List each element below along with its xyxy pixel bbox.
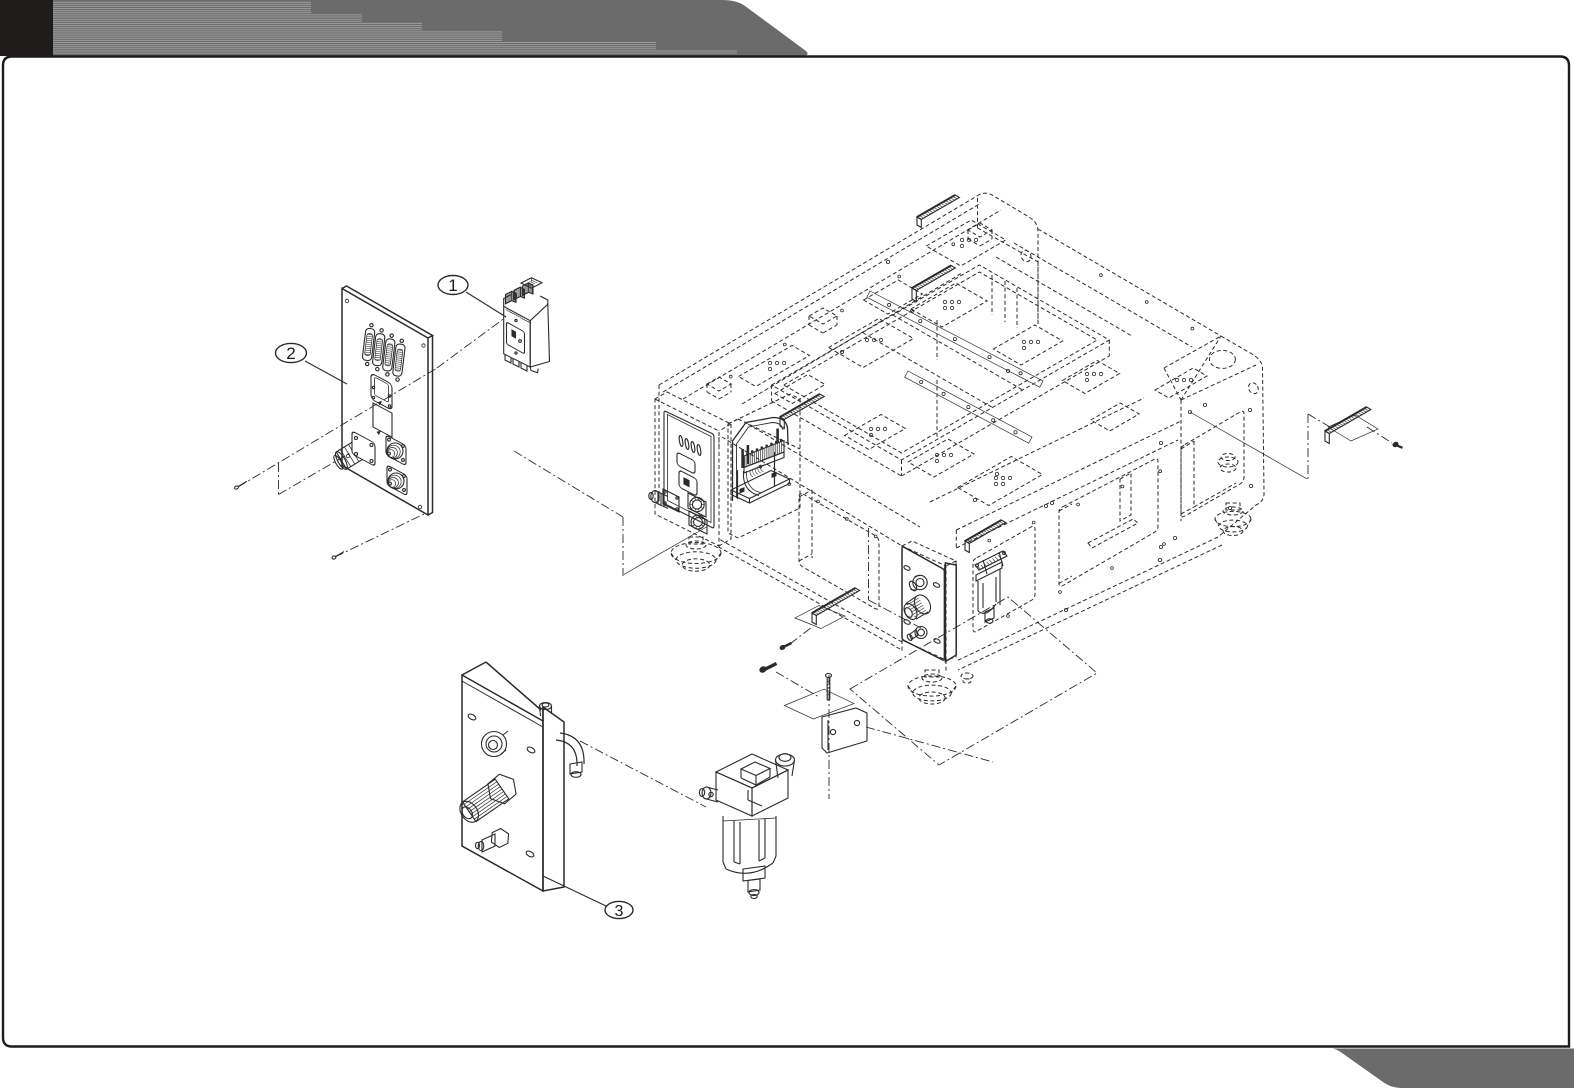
svg-text:1: 1 [448,276,457,295]
svg-text:3: 3 [615,903,624,920]
svg-text:2: 2 [286,344,295,363]
